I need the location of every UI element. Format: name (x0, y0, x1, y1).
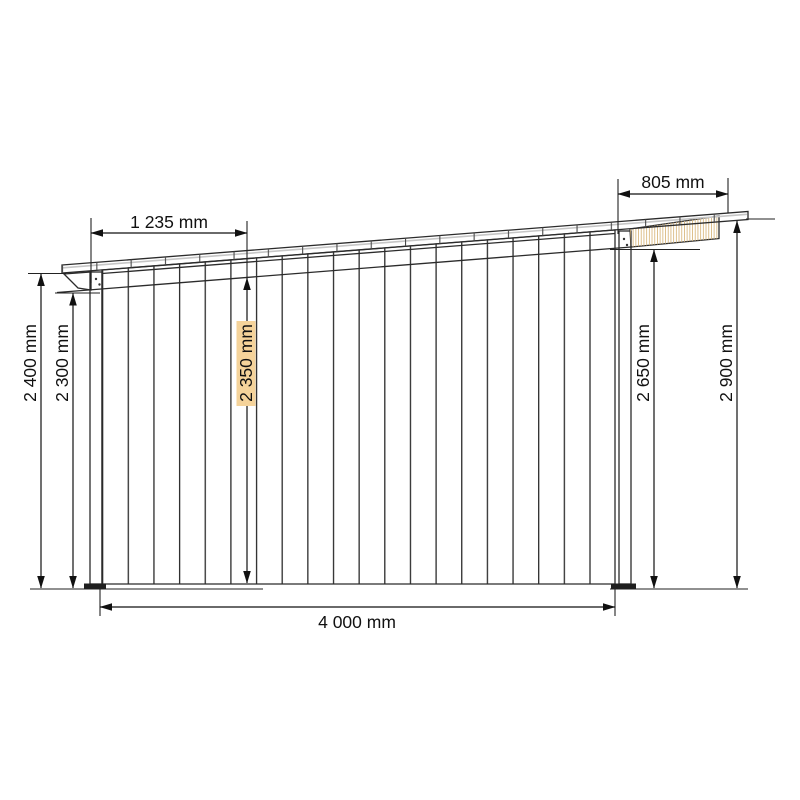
left-fascia-wedge (64, 272, 91, 290)
dim-label-wall-left-outer-height: 2 400 mm (20, 324, 40, 402)
dim-label-wall-left-inner-height: 2 300 mm (52, 324, 72, 402)
dim-label-roof-right-overhang: 805 mm (641, 172, 704, 192)
bolt-dot-left-2 (98, 283, 100, 285)
dim-label-wall-mid-height: 2 350 mm (236, 324, 256, 402)
left-corner-post (90, 272, 102, 584)
bolt-dot-right-1 (623, 238, 625, 240)
dim-label-wall-right-inner-height: 2 650 mm (633, 324, 653, 402)
drawing-svg: 1 235 mm 805 mm 4 000 mm 2 400 mm 2 300 … (0, 0, 800, 800)
right-corner-post (619, 231, 631, 584)
dim-label-roof-right-height: 2 900 mm (716, 324, 736, 402)
bolt-dot-left-1 (95, 278, 97, 280)
left-post-foot (84, 584, 106, 590)
dim-label-roof-left-offset: 1 235 mm (130, 212, 208, 232)
bolt-dot-right-2 (626, 244, 628, 246)
shed-elevation-drawing: 1 235 mm 805 mm 4 000 mm 2 400 mm 2 300 … (0, 0, 800, 800)
dim-label-wall-width: 4 000 mm (318, 612, 396, 632)
